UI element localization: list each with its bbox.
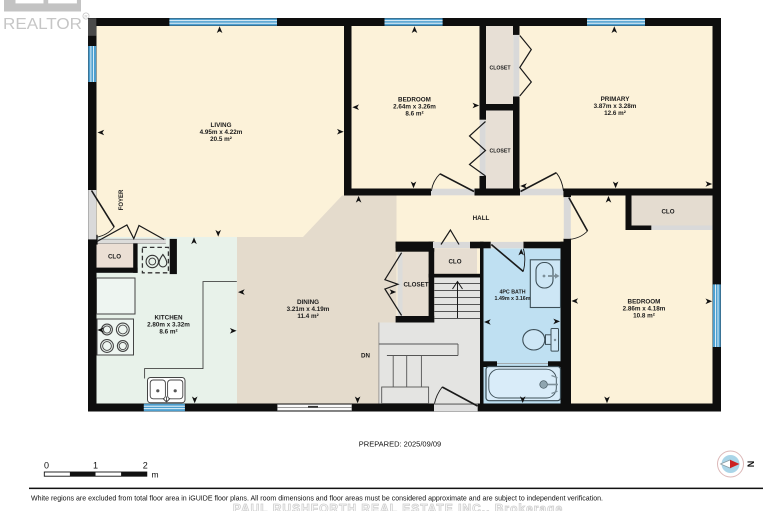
svg-text:PRIMARY: PRIMARY [601, 96, 631, 103]
svg-text:PREPARED: 2025/09/09: PREPARED: 2025/09/09 [359, 440, 441, 449]
svg-text:CLOSET: CLOSET [489, 66, 511, 72]
svg-text:8.6 m²: 8.6 m² [159, 329, 177, 336]
svg-text:0: 0 [44, 461, 49, 471]
svg-text:KITCHEN: KITCHEN [155, 315, 183, 322]
svg-text:2.64m x 3.26m: 2.64m x 3.26m [393, 104, 436, 111]
svg-text:N: N [746, 461, 756, 468]
svg-text:DINING: DINING [297, 299, 319, 306]
svg-text:4.95m x 4.22m: 4.95m x 4.22m [200, 129, 243, 136]
svg-text:BEDROOM: BEDROOM [398, 97, 431, 104]
svg-text:1.49m x 3.16m: 1.49m x 3.16m [495, 296, 531, 302]
svg-text:PAUL RUSHFORTH REAL ESTATE INC: PAUL RUSHFORTH REAL ESTATE INC., Brokera… [233, 502, 563, 511]
svg-text:HALL: HALL [473, 215, 490, 222]
svg-text:10.8 m²: 10.8 m² [633, 313, 655, 320]
svg-text:1: 1 [93, 461, 98, 471]
svg-text:DN: DN [361, 353, 370, 360]
svg-text:8.6 m²: 8.6 m² [405, 111, 423, 118]
svg-text:4PC BATH: 4PC BATH [499, 290, 525, 296]
svg-text:20.5 m²: 20.5 m² [210, 136, 232, 143]
svg-text:CLO: CLO [661, 209, 674, 216]
svg-text:LIVING: LIVING [211, 122, 232, 129]
svg-text:CLOSET: CLOSET [489, 149, 511, 155]
svg-text:CLOSET: CLOSET [403, 282, 428, 289]
svg-text:3.21m x 4.19m: 3.21m x 4.19m [287, 306, 330, 313]
svg-text:11.4 m²: 11.4 m² [297, 313, 318, 320]
svg-text:2.80m x 3.32m: 2.80m x 3.32m [147, 322, 190, 329]
svg-text:m: m [152, 470, 159, 480]
svg-text:BEDROOM: BEDROOM [628, 299, 661, 306]
svg-text:FOYER: FOYER [119, 189, 125, 210]
svg-text:CLO: CLO [448, 259, 461, 266]
svg-text:REALTOR: REALTOR [3, 16, 82, 33]
svg-text:2.86m x 4.18m: 2.86m x 4.18m [623, 306, 666, 313]
svg-text:CLO: CLO [108, 254, 121, 261]
svg-text:3.87m x 3.28m: 3.87m x 3.28m [594, 103, 637, 110]
svg-text:12.6 m²: 12.6 m² [604, 110, 626, 117]
svg-text:2: 2 [143, 461, 148, 471]
